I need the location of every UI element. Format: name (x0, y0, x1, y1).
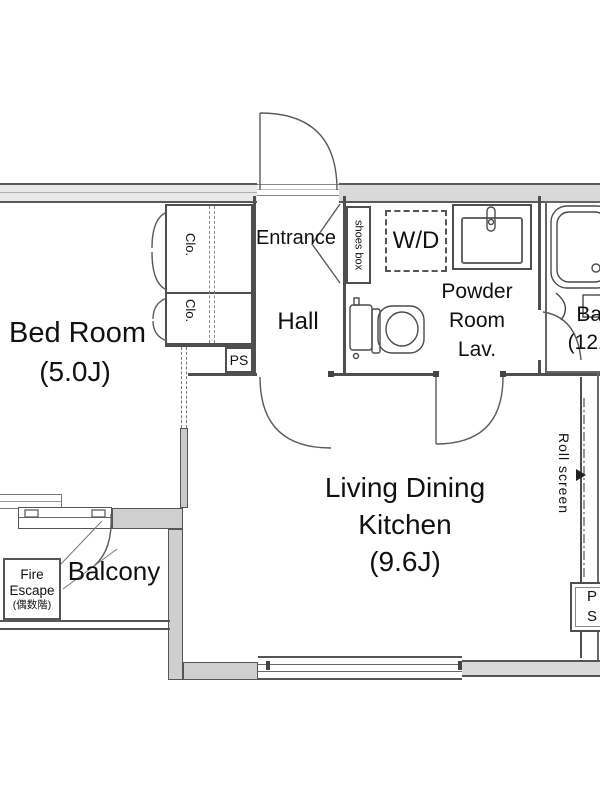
wd-label: W/D (393, 227, 440, 255)
toilet-bowl (386, 312, 418, 346)
pipe-space-lower: PS (570, 582, 600, 632)
bath-name: Bath (552, 301, 600, 329)
threshold-line (257, 189, 339, 190)
roll-screen-label: Roll screen (556, 406, 572, 541)
toilet-valve (354, 354, 359, 359)
balcony-outer-edge (0, 620, 170, 630)
powder-line2: Room (418, 306, 536, 335)
fire-escape-hatch-label-box: Fire Escape (偶数階) (3, 558, 61, 620)
floor-plan: W/D shoes box PS PS Fire Escape (偶数階) (0, 0, 600, 800)
fire-escape-line1: Fire (20, 567, 43, 583)
ldk-line1: Living Dining (295, 469, 515, 506)
shoes-box-label: shoes box (353, 220, 365, 270)
powder-door-swing (436, 377, 503, 444)
balcony-label: Balcony (58, 556, 170, 587)
wall-ldk-top-3 (503, 373, 600, 376)
washer-dryer-space: W/D (385, 210, 447, 272)
plan-linework (0, 0, 600, 800)
window-track-line (0, 192, 257, 193)
window-track-line (19, 517, 111, 518)
bath-label: Bath (1216) (552, 301, 600, 357)
powder-line3: Lav. (418, 335, 536, 364)
bedroom-ldk-opening-dash (181, 347, 182, 428)
ldk-line2: Kitchen (295, 506, 515, 543)
bedroom-label: Bed Room (0, 317, 155, 350)
window-track-line (258, 671, 462, 672)
washbasin-bowl (461, 217, 523, 264)
powder-room-label: Powder Room Lav. (418, 277, 536, 364)
fire-escape-line3: (偶数階) (13, 599, 52, 612)
bedroom-ldk-wall (180, 428, 188, 508)
hall-label: Hall (258, 308, 338, 336)
toilet-arm (372, 309, 380, 353)
closet-top-label: Clo. (183, 218, 198, 272)
hall-door-swing (260, 377, 331, 448)
wall-ldk-top-1 (188, 373, 257, 376)
toilet-cistern (350, 305, 372, 350)
top-wall-window-band (0, 183, 257, 203)
wall-window-right (112, 508, 183, 529)
balcony-right-wall (168, 529, 183, 680)
bath-size: (1216) (552, 329, 600, 357)
bedroom-balcony-window (18, 507, 112, 529)
balcony-step-wall (183, 662, 258, 680)
wall-ldk-top-2 (331, 373, 436, 376)
entrance-threshold (257, 184, 339, 196)
bedroom-size: (5.0J) (25, 356, 125, 388)
ldk-size: (9.6J) (295, 543, 515, 580)
closet-bottom-label: Clo. (183, 284, 198, 338)
pipe-space-upper: PS (225, 347, 253, 373)
ldk-bottom-window (258, 656, 462, 680)
entrance-label: Entrance (252, 227, 340, 250)
wall-entrance-left (253, 196, 256, 375)
wall-bath-left-upper (538, 196, 541, 310)
powder-line1: Powder (418, 277, 536, 306)
closet-dashed-line (214, 206, 215, 343)
ps-label: PS (583, 587, 600, 627)
ldk-label: Living Dining Kitchen (9.6J) (295, 469, 515, 580)
toilet (350, 298, 424, 359)
ps-label: PS (230, 352, 249, 368)
bedroom-ldk-opening-dash (186, 347, 187, 428)
entrance-door-swing (260, 113, 337, 190)
toilet-handle (354, 298, 359, 305)
partition-line (0, 501, 61, 502)
bottom-right-wall (462, 660, 600, 677)
shoes-box: shoes box (346, 206, 371, 284)
top-wall-right-band (339, 183, 600, 203)
fire-escape-line2: Escape (9, 583, 54, 599)
window-track-line (258, 664, 462, 665)
closet-dashed-line (209, 206, 210, 343)
